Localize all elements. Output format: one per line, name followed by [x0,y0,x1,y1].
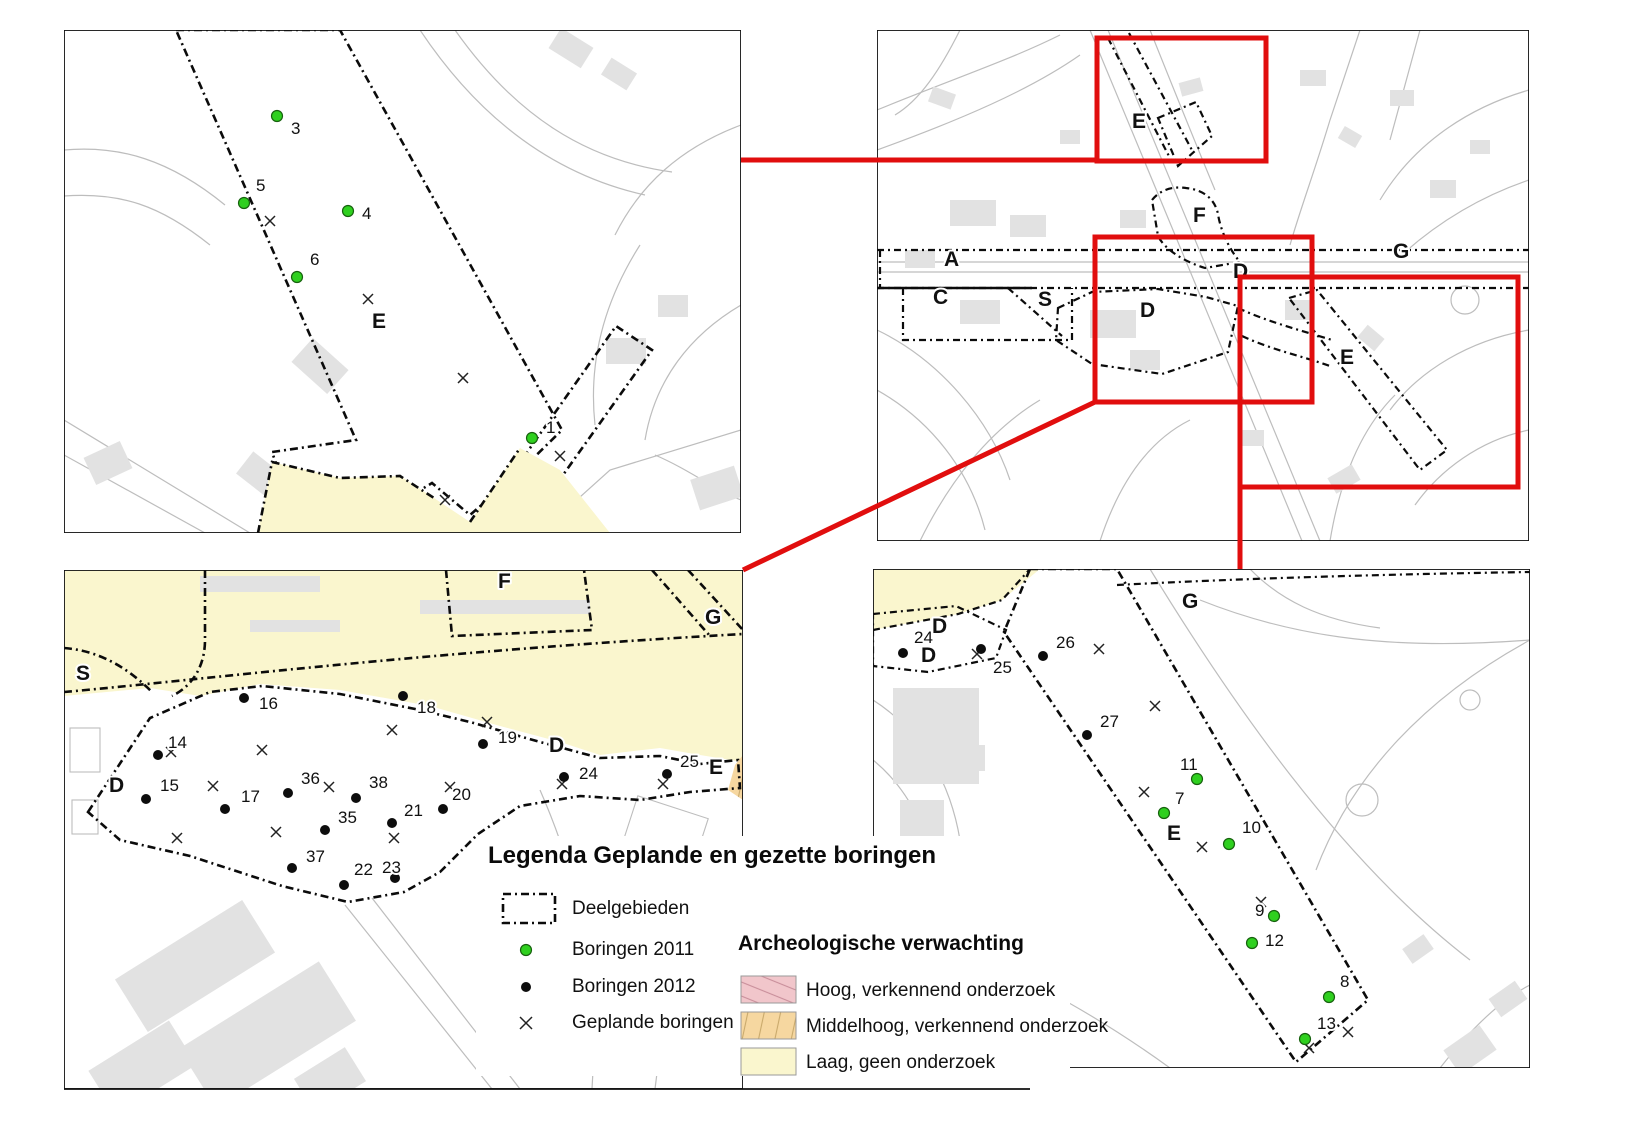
boring-2012-dot [239,693,249,703]
boring-2011-label: 9 [1255,901,1264,920]
boring-2012-dot [387,818,397,828]
boring-2012-dot [662,769,672,779]
boring-2012-label: 24 [579,764,598,783]
boring-2012-dot [1082,730,1092,740]
boring-2011-dot [1224,839,1235,850]
boring-2011-label: 5 [256,176,265,195]
area-label: D [109,774,124,797]
boring-2012-label: 36 [301,769,320,788]
boring-2011-label: 11 [1180,755,1198,774]
boring-2012-label: 16 [259,694,278,713]
boring-2011-dot [1269,911,1280,922]
boring-2012-dot [1038,651,1048,661]
hoog-swatch-icon [740,975,798,1005]
boring-2011-dot [343,206,354,217]
boring-2011-dot [1192,774,1203,785]
area-label: E [372,310,386,333]
area-label: F [1193,204,1206,227]
boring-2012-dot [976,644,986,654]
boring-2012-label: 19 [498,728,517,747]
boring-2011-label: 12 [1265,931,1284,950]
deelgebieden-swatch-icon [500,891,560,927]
area-label: C [933,286,948,309]
boring-2012-dot [320,825,330,835]
area-label: E [1132,110,1146,133]
boring-2011-label: 4 [362,204,371,223]
boring-2012-icon [516,977,536,997]
area-label: E [1167,822,1181,845]
boring-2011-label: 1 [546,418,555,437]
area-label: D [932,615,947,638]
legend-item-deelgebieden: Deelgebieden [572,898,689,920]
area-label: S [1038,288,1052,311]
boring-2012-dot [559,772,569,782]
boring-2012-label: 18 [417,698,436,717]
area-label: F [498,570,511,593]
boring-2011-dot [1300,1034,1311,1045]
boring-2011-label: 3 [291,119,300,138]
panel-overview: EFACSDDGE [877,30,1529,541]
boring-2012-dot [339,880,349,890]
boring-2011-dot [272,111,283,122]
area-label: D [549,734,564,757]
boring-2012-label: 25 [680,752,699,771]
boring-2012-dot [287,863,297,873]
boring-2011-dot [1247,938,1258,949]
boring-2011-dot [239,198,250,209]
planned-boring-icon [516,1013,536,1033]
legend: Legenda Geplande en gezette boringen Dee… [476,836,1070,1076]
boring-2012-label: 15 [160,776,179,795]
legend-item-laag: Laag, geen onderzoek [806,1052,995,1074]
legend-item-middelhoog: Middelhoog, verkennend onderzoek [806,1016,1108,1038]
area-label: D [921,644,936,667]
legend-item-hoog: Hoog, verkennend onderzoek [806,980,1055,1002]
boring-2012-dot [398,691,408,701]
boring-2012-label: 26 [1056,633,1075,652]
legend-expectation-heading: Archeologische verwachting [738,932,1024,956]
boring-2012-dot [478,739,488,749]
area-label: G [1182,590,1198,613]
boring-2012-label: 22 [354,860,373,879]
boring-2012-label: 37 [306,847,325,866]
boring-2012-label: 35 [338,808,357,827]
boring-2012-dot [153,750,163,760]
boring-2011-dot [527,433,538,444]
middelhoog-swatch-icon [740,1011,798,1041]
boring-2012-label: 38 [369,773,388,792]
boring-2011-label: 13 [1317,1014,1336,1033]
boring-2011-label: 6 [310,250,319,269]
boring-2012-label: 14 [168,733,187,752]
boring-2011-dot [1159,808,1170,819]
area-label: S [76,662,90,685]
laag-swatch-icon [740,1047,798,1077]
boring-2012-dot [351,793,361,803]
boring-2011-dot [1324,992,1335,1003]
legend-item-boringen-2011: Boringen 2011 [572,939,694,961]
area-label: E [709,756,723,779]
boring-2012-label: 21 [404,801,423,820]
boring-2012-dot [141,794,151,804]
area-label: G [1393,240,1409,263]
boring-2012-dot [220,804,230,814]
area-label: D [1140,299,1155,322]
boring-2011-label: 8 [1340,972,1349,991]
area-label: A [944,248,959,271]
boring-2012-dot [283,788,293,798]
boring-2012-label: 17 [241,787,260,806]
area-label: G [705,606,721,629]
legend-item-boringen-2012: Boringen 2012 [572,976,696,998]
area-label: E [1340,346,1354,369]
boring-2012-label: 27 [1100,712,1119,731]
boring-2012-label: 20 [452,785,471,804]
boring-2012-label: 25 [993,658,1012,677]
panel-detail-north: 35461E [64,28,744,542]
boring-2012-dot [438,804,448,814]
boring-2011-label: 7 [1175,789,1184,808]
boring-2011-label: 10 [1242,818,1261,837]
boring-2011-dot [292,272,303,283]
legend-title: Legenda Geplande en gezette boringen [488,842,936,870]
boring-2011-icon [516,940,536,960]
boring-2012-dot [898,648,908,658]
legend-item-geplande-boringen: Geplande boringen [572,1012,734,1034]
boring-2012-label: 23 [382,858,401,877]
